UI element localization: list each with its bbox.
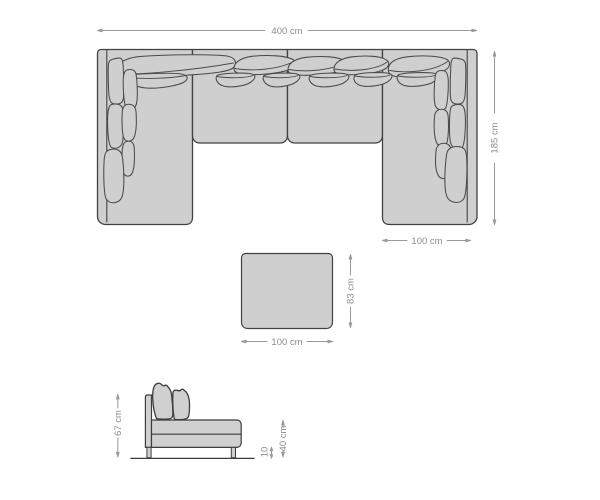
svg-text:67 cm: 67 cm	[113, 410, 124, 436]
svg-text:10: 10	[260, 447, 271, 458]
svg-text:185 cm: 185 cm	[490, 122, 501, 153]
svg-text:400 cm: 400 cm	[271, 26, 302, 37]
svg-text:83 cm: 83 cm	[346, 278, 357, 304]
svg-text:100 cm: 100 cm	[411, 236, 442, 247]
svg-text:40 cm: 40 cm	[278, 425, 289, 451]
svg-text:100 cm: 100 cm	[271, 337, 302, 348]
